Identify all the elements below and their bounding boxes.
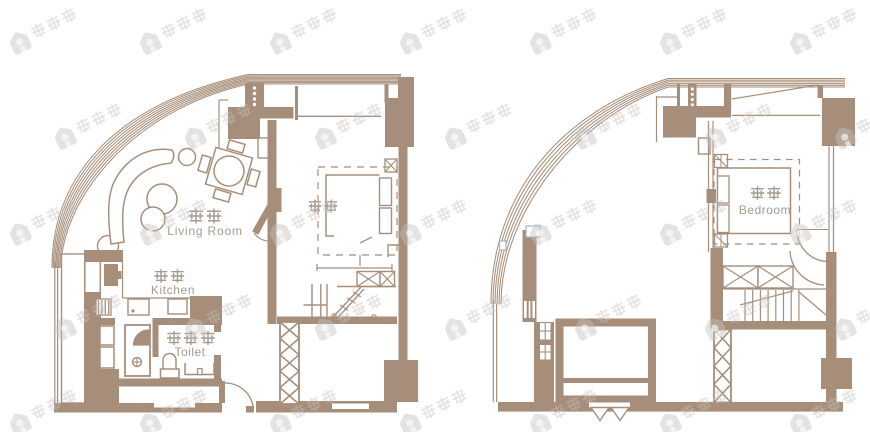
svg-text:Bedroom: Bedroom: [739, 203, 791, 217]
svg-text:Living Room: Living Room: [167, 224, 243, 238]
svg-text:Kitchen: Kitchen: [151, 283, 195, 297]
svg-text:Toilet: Toilet: [174, 345, 205, 359]
